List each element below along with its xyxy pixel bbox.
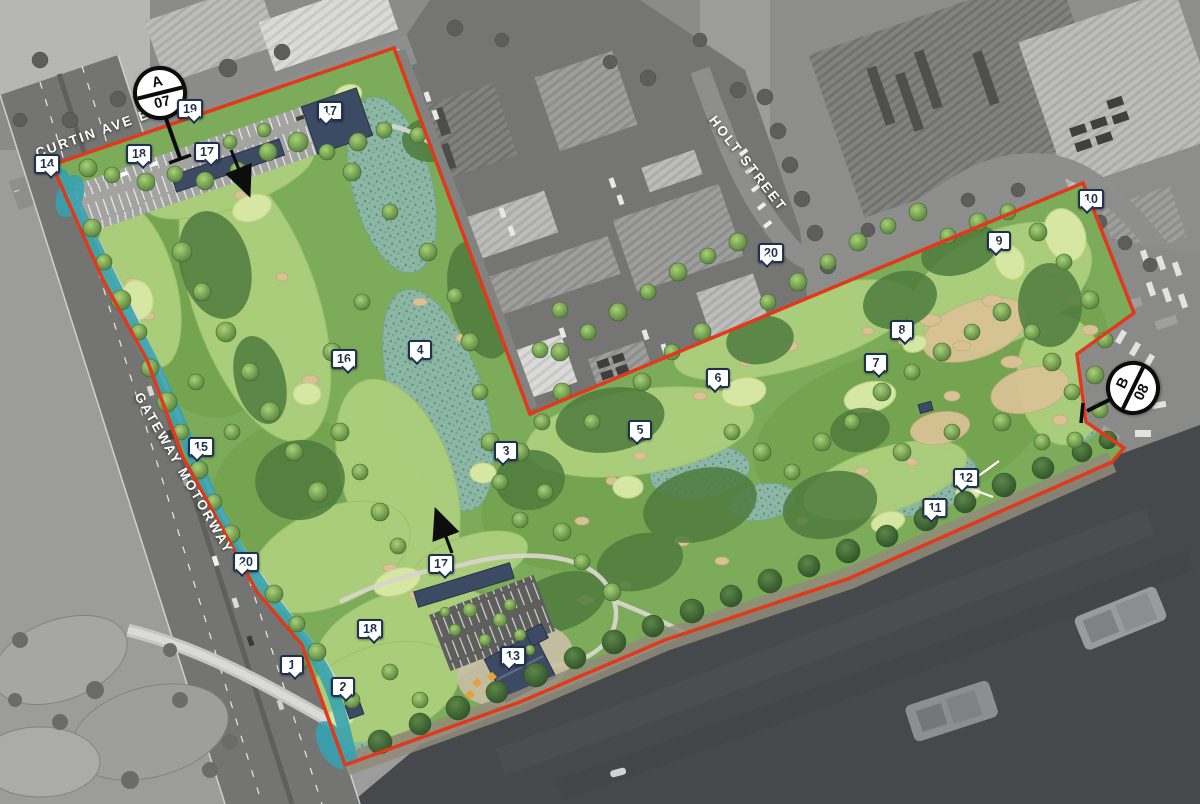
callout-10: 10: [1078, 189, 1104, 209]
callout-11: 11: [922, 498, 947, 518]
callout-1: 1: [280, 655, 304, 675]
callout-3: 3: [494, 441, 518, 461]
section-number: 08: [1132, 382, 1152, 403]
site-masterplan: CURTIN AVE E HOLT STREET GATEWAY MOTORWA…: [0, 0, 1200, 804]
callout-9: 9: [987, 231, 1011, 251]
callout-13: 13: [500, 646, 526, 666]
callout-17: 17: [317, 101, 343, 121]
callout-8: 8: [890, 320, 914, 340]
section-b-tick: [1081, 403, 1083, 423]
callout-7: 7: [864, 353, 888, 373]
callout-17: 17: [194, 142, 220, 162]
aerial-plan-canvas: [0, 0, 1200, 804]
callout-20: 20: [233, 552, 259, 572]
callout-4: 4: [408, 340, 432, 360]
callout-2: 2: [331, 677, 355, 697]
callout-19: 19: [177, 99, 203, 119]
callout-18: 18: [126, 144, 152, 164]
callout-15: 15: [188, 437, 214, 457]
callout-20: 20: [758, 243, 784, 263]
callout-5: 5: [628, 420, 652, 440]
callout-17: 17: [428, 554, 454, 574]
callout-12: 12: [953, 468, 979, 488]
callout-14: 14: [34, 154, 60, 174]
callout-16: 16: [331, 349, 357, 369]
callout-18: 18: [357, 619, 383, 639]
section-number: 07: [153, 94, 172, 112]
section-letter: A: [151, 75, 165, 92]
callout-6: 6: [706, 368, 730, 388]
